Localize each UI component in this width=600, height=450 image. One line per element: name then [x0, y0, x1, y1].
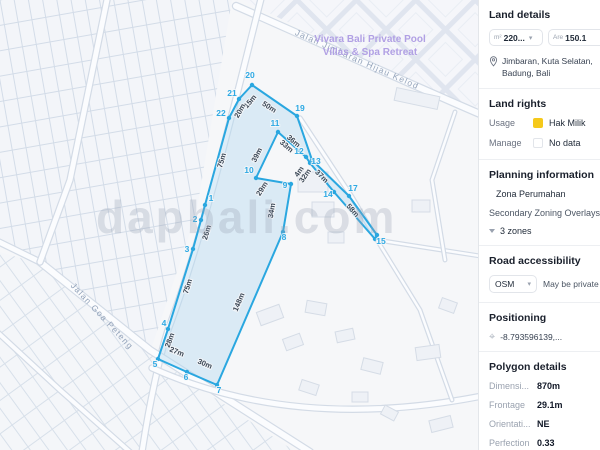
- section-positioning: Positioning ⌖ -8.793596139,...: [479, 303, 600, 352]
- zone-value: Zona Perumahan: [496, 189, 566, 199]
- vertex-number-label: 7: [217, 385, 222, 395]
- section-road-accessibility: Road accessibility OSM ▾ May be private: [479, 246, 600, 303]
- frontage-row: Frontage 29.1m: [489, 400, 600, 410]
- vertex-number-label: 8: [282, 232, 287, 242]
- area-are-field[interactable]: Are 150.1: [548, 29, 600, 46]
- coordinates-value: -8.793596139,...: [500, 332, 562, 342]
- positioning-title: Positioning: [489, 312, 600, 324]
- parcel-vertex[interactable]: [199, 218, 203, 222]
- vertex-number-label: 4: [162, 318, 167, 328]
- land-rights-title: Land rights: [489, 98, 600, 110]
- land-details-title: Land details: [489, 9, 600, 21]
- parcel-vertex[interactable]: [289, 182, 293, 186]
- parcel-vertex[interactable]: [347, 194, 351, 198]
- road-note: May be private: [543, 279, 599, 289]
- parcel-vertex[interactable]: [276, 130, 280, 134]
- are-unit-label: Are: [553, 34, 563, 41]
- usage-color-swatch: [533, 118, 543, 128]
- parcel-vertex[interactable]: [166, 327, 170, 331]
- location-text: Jimbaran, Kuta Selatan, Badung, Bali: [502, 55, 593, 79]
- vertex-number-label: 5: [153, 359, 158, 369]
- perfection-row: Perfection 0.33: [489, 438, 600, 448]
- vertex-number-label: 21: [227, 88, 237, 98]
- zones-count: 3 zones: [500, 226, 532, 236]
- vertex-number-label: 20: [245, 70, 255, 80]
- section-land-rights: Land rights Usage Hak Milik Manage No da…: [479, 89, 600, 160]
- frontage-value: 29.1m: [537, 400, 563, 410]
- road-source-select[interactable]: OSM ▾: [489, 275, 537, 293]
- vertex-number-label: 14: [323, 189, 333, 199]
- usage-row: Usage Hak Milik: [489, 118, 600, 128]
- zones-expander[interactable]: 3 zones: [489, 226, 600, 236]
- chevron-down-icon[interactable]: ▾: [529, 34, 533, 42]
- parcel-vertex[interactable]: [227, 116, 231, 120]
- parcel-vertex[interactable]: [237, 97, 241, 101]
- parcel-vertex[interactable]: [295, 114, 299, 118]
- polygon-details-title: Polygon details: [489, 361, 600, 373]
- vertex-number-label: 6: [184, 372, 189, 382]
- map-canvas[interactable]: Jalan Jimbaran Hijau KelodJalan Goa Pete…: [0, 0, 478, 450]
- parcel-vertex[interactable]: [203, 203, 207, 207]
- zone-row: Zona Perumahan: [489, 189, 600, 199]
- vertex-number-label: 12: [294, 146, 304, 156]
- parcel-vertex[interactable]: [250, 83, 254, 87]
- vertex-number-label: 2: [193, 214, 198, 224]
- vertex-number-label: 22: [216, 108, 226, 118]
- vertex-number-label: 13: [311, 156, 321, 166]
- location-pin-icon: [489, 56, 498, 67]
- vertex-number-label: 19: [295, 103, 305, 113]
- usage-value: Hak Milik: [549, 118, 586, 128]
- section-land-details: Land details m² 220... ▾ Are 150.1 Jimba…: [479, 0, 600, 89]
- orientation-row: Orientati... NE: [489, 419, 600, 429]
- dimension-value: 870m: [537, 381, 560, 391]
- parcel-vertex[interactable]: [191, 247, 195, 251]
- sqm-unit-label: m²: [494, 34, 502, 41]
- perfection-value: 0.33: [537, 438, 555, 448]
- parcel-vertex[interactable]: [254, 176, 258, 180]
- vertex-number-label: 10: [244, 165, 254, 175]
- parcel-vertex[interactable]: [304, 155, 308, 159]
- dimension-row: Dimensi... 870m: [489, 381, 600, 391]
- details-sidebar: Land details m² 220... ▾ Are 150.1 Jimba…: [478, 0, 600, 450]
- manage-row: Manage No data: [489, 138, 600, 148]
- vertex-number-label: 1: [209, 193, 214, 203]
- overlays-label: Secondary Zoning Overlays: [489, 208, 600, 218]
- manage-color-swatch: [533, 138, 543, 148]
- vertex-number-label: 17: [348, 183, 358, 193]
- chevron-down-icon: ▾: [527, 280, 531, 288]
- manage-value: No data: [549, 138, 581, 148]
- orientation-value: NE: [537, 419, 550, 429]
- vertex-number-label: 11: [271, 118, 280, 128]
- area-sqm-field[interactable]: m² 220... ▾: [489, 29, 543, 46]
- chevron-down-icon: [489, 229, 495, 233]
- app-window: Jalan Jimbaran Hijau KelodJalan Goa Pete…: [0, 0, 600, 450]
- planning-title: Planning information: [489, 169, 600, 181]
- crosshair-icon: ⌖: [489, 332, 495, 342]
- vertex-number-label: 15: [376, 236, 386, 246]
- map-svg[interactable]: Jalan Jimbaran Hijau KelodJalan Goa Pete…: [0, 0, 478, 450]
- section-planning: Planning information Zona Perumahan Seco…: [479, 160, 600, 246]
- vertex-number-label: 3: [185, 244, 190, 254]
- vertex-number-label: 9: [283, 180, 288, 190]
- road-accessibility-title: Road accessibility: [489, 255, 600, 267]
- section-polygon-details: Polygon details Dimensi... 870m Frontage…: [479, 352, 600, 450]
